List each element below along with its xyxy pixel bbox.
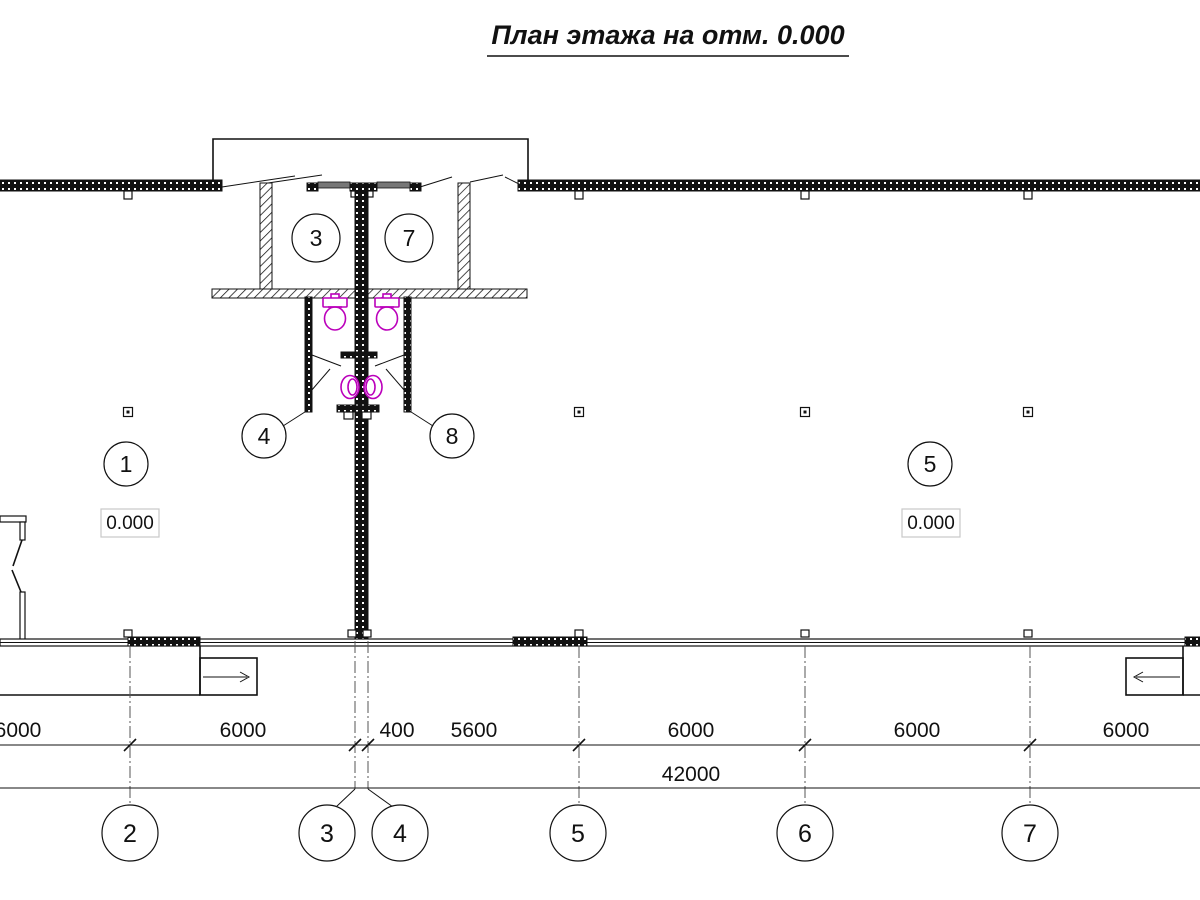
stall-door-swing: [311, 369, 330, 391]
fixture-mark: [344, 412, 353, 419]
west-wall-upper: [20, 522, 25, 540]
leader-room-8: [408, 410, 433, 426]
room-tag-5: 5: [924, 451, 937, 477]
floor-plan-sheet: План этажа на отм. 0.000: [0, 0, 1200, 900]
dim-label: 6000: [668, 719, 715, 742]
wc-mid-partition: [341, 352, 377, 358]
door-leaf: [470, 175, 503, 182]
column-mark: [363, 630, 371, 637]
stall-door-swing: [375, 355, 404, 366]
ramp-right: [1126, 646, 1200, 695]
grid-leader-3: [336, 789, 355, 807]
axis-label-5: 5: [571, 820, 585, 848]
ramp-left: [0, 646, 257, 695]
dim-label: 6000: [0, 719, 41, 742]
room3-left-wall: [260, 183, 272, 297]
rooms-3-7-block: [212, 182, 527, 298]
axis-label-7: 7: [1023, 820, 1037, 848]
axis-label-4: 4: [393, 820, 407, 848]
sink-right: [364, 376, 382, 399]
floor-plan-drawing: План этажа на отм. 0.000: [0, 0, 1200, 900]
column-mark: [575, 191, 583, 199]
door-leaf: [13, 540, 22, 566]
stall-door-swing: [386, 369, 405, 391]
dim-label: 5600: [451, 719, 498, 742]
dim-label: 6000: [220, 719, 267, 742]
wc-left-wall: [305, 297, 312, 412]
south-wall: [0, 630, 1200, 646]
page-title: План этажа на отм. 0.000: [491, 20, 844, 50]
column-mark: [801, 630, 809, 637]
axis-label-3: 3: [320, 820, 334, 848]
column-mark: [575, 630, 583, 637]
room-tag-3: 3: [310, 225, 323, 251]
window-glazing: [318, 182, 350, 188]
column-mark: [575, 408, 584, 417]
wc-lower-partition: [337, 405, 379, 412]
stall-door-swing: [312, 355, 341, 366]
column-mark: [124, 191, 132, 199]
sink-left: [341, 376, 359, 399]
top-wall: [0, 180, 1200, 199]
column-mark: [801, 191, 809, 199]
toilet-right: [375, 294, 399, 330]
axis-label-6: 6: [798, 820, 812, 848]
toilet-left: [323, 294, 347, 330]
window-pier: [410, 183, 421, 191]
axis-bubbles: 2 3 4 5 6 7: [102, 805, 1058, 861]
grid-leader-4: [368, 789, 393, 807]
room-tag-1: 1: [120, 451, 133, 477]
elevation-markers: 0.000 0.000: [101, 509, 960, 537]
leader-room-4: [283, 410, 308, 426]
top-wall-right-segment: [518, 180, 1200, 191]
elevation-value-right: 0.000: [907, 513, 955, 534]
west-wall: [0, 516, 26, 640]
column-mark: [801, 408, 810, 417]
room7-right-wall: [458, 183, 470, 297]
room-tag-8: 8: [446, 423, 459, 449]
column-mark: [1024, 191, 1032, 199]
room-tag-4: 4: [258, 423, 271, 449]
south-wall-stipple: [1185, 637, 1200, 646]
rooms-bottom-wall: [212, 289, 527, 298]
window-glazing: [377, 182, 410, 188]
overall-dim-label: 42000: [662, 763, 720, 786]
wc-right-wall: [404, 297, 411, 412]
south-wall-stipple: [128, 637, 200, 646]
column-mark: [1024, 408, 1033, 417]
window-pier: [307, 183, 318, 191]
column-mark: [1024, 630, 1032, 637]
top-wall-left-segment: [0, 180, 222, 191]
column-mark: [124, 408, 133, 417]
dimension-line-segments: 6000 6000 400 5600 6000 6000 6000: [0, 719, 1200, 751]
south-wall-stipple: [513, 637, 587, 646]
dim-label: 6000: [894, 719, 941, 742]
column-mark: [348, 630, 356, 637]
axis-label-2: 2: [123, 820, 137, 848]
canopy-outline: [213, 139, 528, 183]
elevation-value-left: 0.000: [106, 513, 154, 534]
room-tag-7: 7: [403, 225, 416, 251]
door-leaf: [12, 570, 21, 592]
west-wall-stub: [0, 516, 26, 522]
dim-label: 6000: [1103, 719, 1150, 742]
fixture-mark: [362, 412, 371, 419]
column-mark: [124, 630, 132, 637]
room-tags: 3 7 4 8 1 5: [104, 214, 952, 486]
west-wall-lower: [20, 592, 25, 640]
dimension-line-overall: 42000: [0, 763, 1200, 788]
door-leaf: [420, 177, 452, 187]
door-leaf: [222, 176, 295, 187]
dim-label: 400: [379, 719, 414, 742]
